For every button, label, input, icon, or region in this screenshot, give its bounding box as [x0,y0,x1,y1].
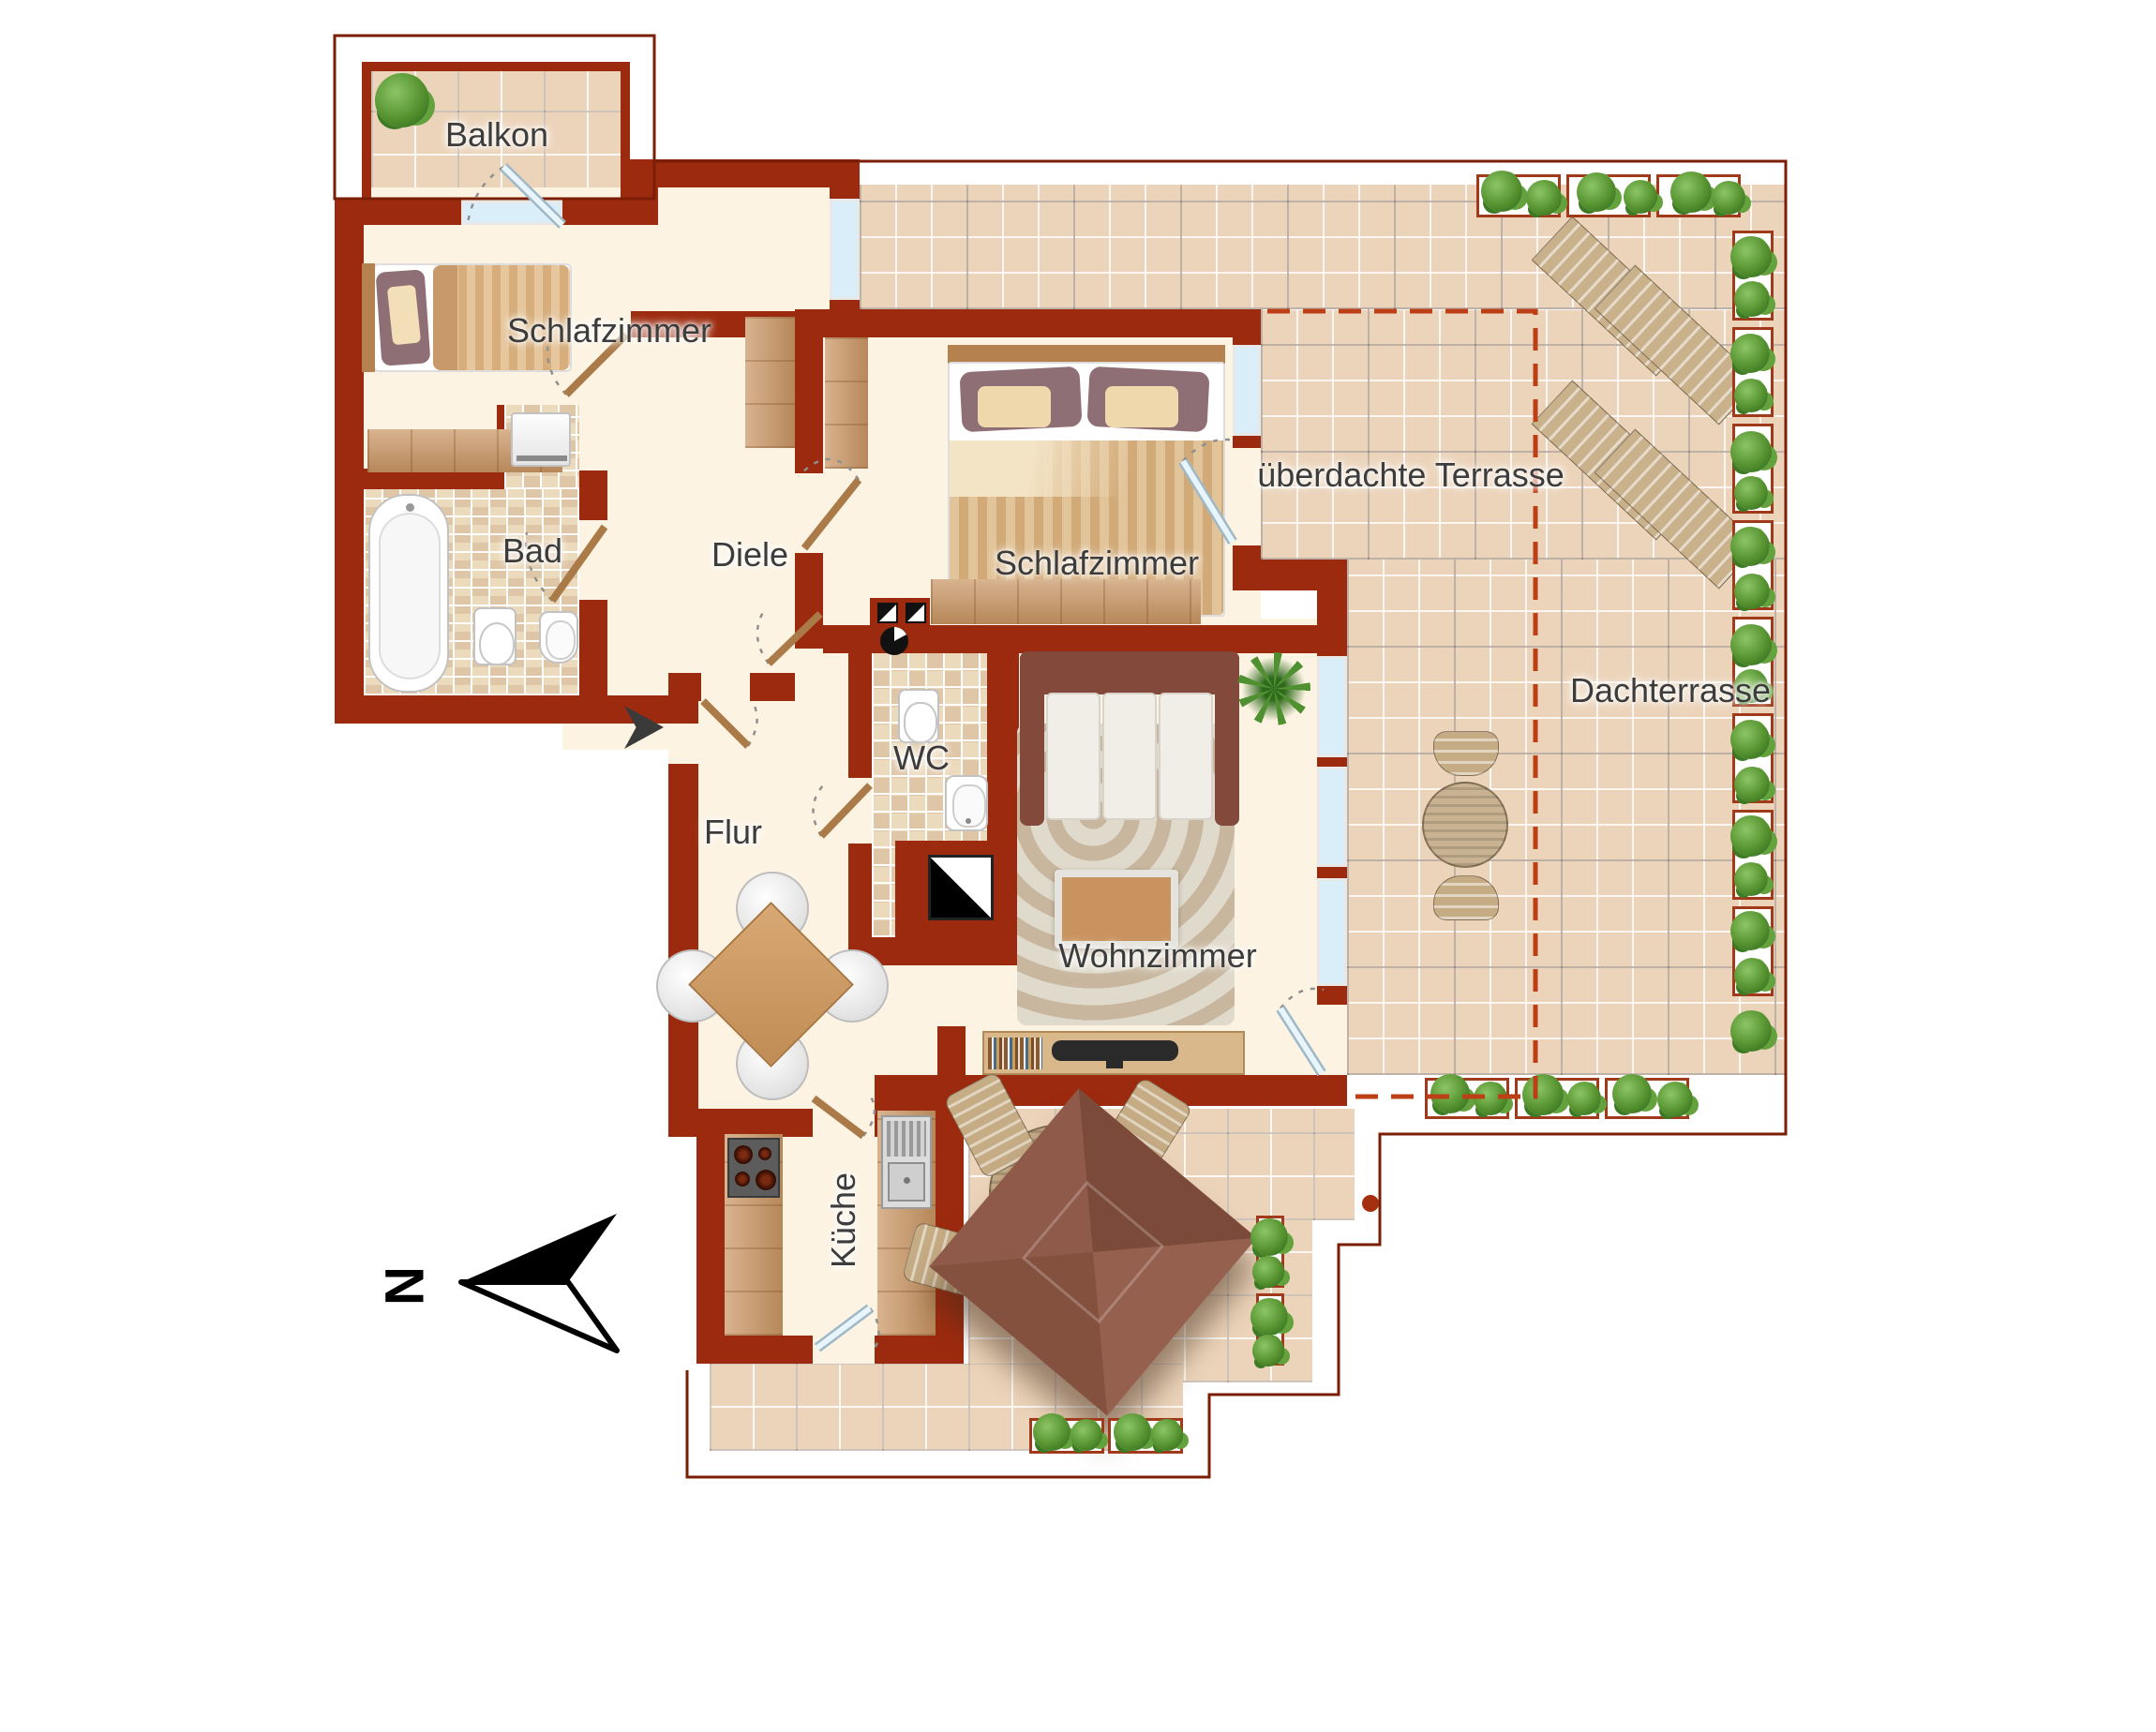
floor-plan: Balkon Schlafzimmer Bad Diele Schlafzimm… [0,0,2156,1732]
door-leaves-glass [503,167,1322,1348]
north-arrow-icon [461,1214,617,1351]
property-outline [654,161,1786,1477]
line-overlay [0,0,2156,1732]
canopy-dashed-boundary [1267,311,1535,1097]
terrace-dot [1362,1195,1379,1212]
door-leaves-wood [552,335,870,1136]
balcony-outline [335,36,654,199]
door-arcs [468,167,1324,1353]
meter-symbols [877,603,926,655]
